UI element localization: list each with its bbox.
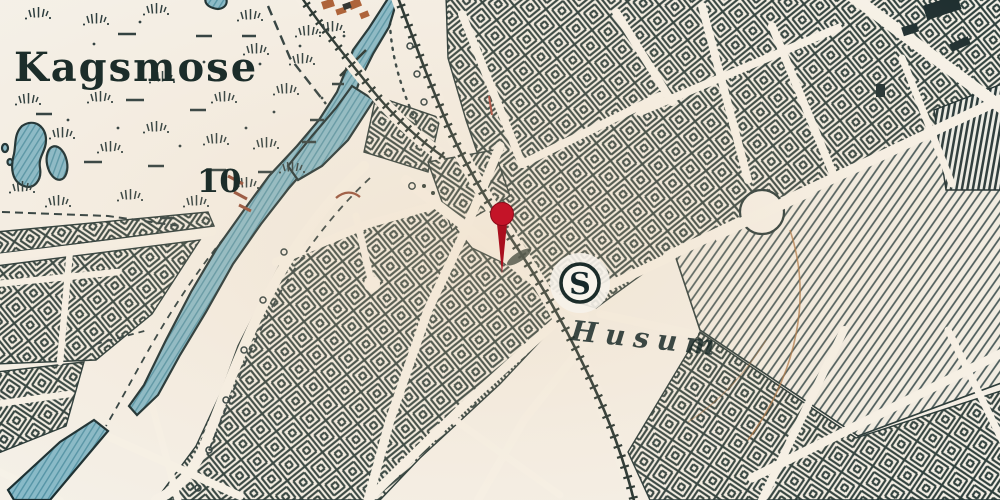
- bog-name-label: Kagsmose: [14, 44, 258, 91]
- elevation-label: 10: [197, 162, 242, 200]
- historical-map-canvas[interactable]: S Kagsmose 10 Husum: [0, 0, 1000, 500]
- pin-head: [491, 203, 514, 226]
- station-symbol: S: [550, 253, 610, 313]
- station-letter: S: [569, 267, 591, 302]
